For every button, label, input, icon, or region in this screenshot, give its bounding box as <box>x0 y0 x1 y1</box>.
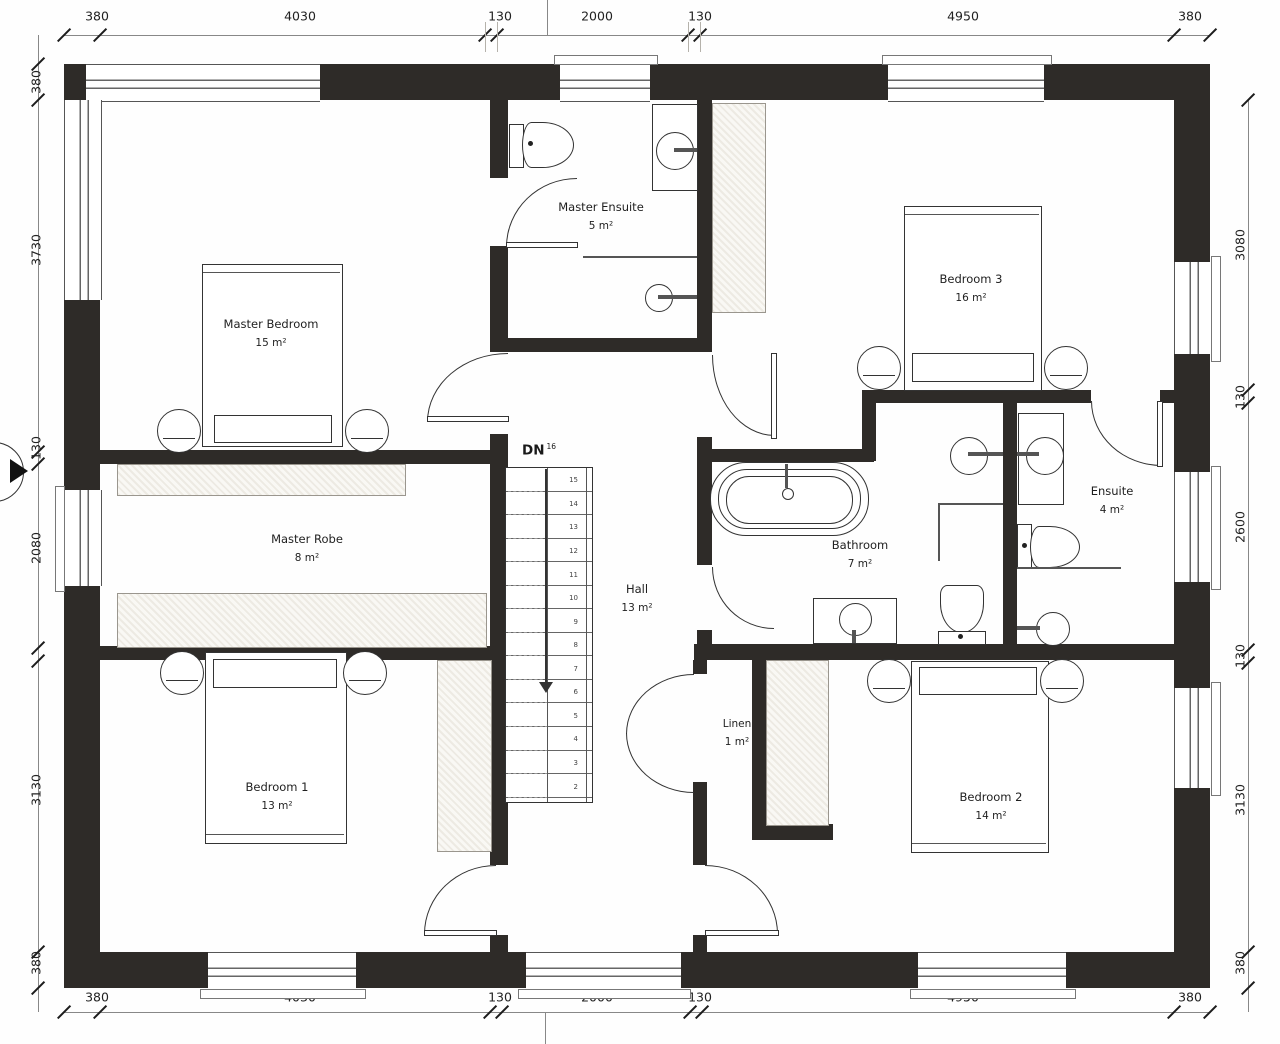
exterior-wall <box>1174 354 1210 472</box>
exterior-wall <box>1174 64 1210 262</box>
door-arc-ensuite <box>1091 401 1162 466</box>
dimension-label: 380 <box>85 9 109 24</box>
counter-line <box>938 503 1003 505</box>
room-label-master-robe: Master Robe8 m² <box>271 530 343 567</box>
interior-wall <box>697 100 712 352</box>
interior-wall <box>697 462 712 565</box>
stair-tread: 11 <box>506 562 592 586</box>
interior-wall <box>498 338 712 352</box>
dimension-label: 130 <box>488 990 512 1005</box>
wardrobe-master-robe-top <box>117 464 406 496</box>
window <box>888 64 1044 102</box>
toilet-button <box>1022 543 1027 548</box>
window-sill <box>1211 682 1221 796</box>
room-label-bedroom-2: Bedroom 214 m² <box>960 788 1023 825</box>
exterior-wall <box>1174 582 1210 688</box>
bed-pillow <box>214 415 332 443</box>
stair-tread: 12 <box>506 539 592 563</box>
wardrobe-bedroom-2 <box>766 660 829 826</box>
dimension-label: 380 <box>85 990 109 1005</box>
dimension-label: 4950 <box>947 9 979 24</box>
bed-pillow <box>213 659 337 688</box>
door-leaf <box>506 242 578 248</box>
toilet-button <box>528 141 533 146</box>
room-label-hall: Hall13 m² <box>621 580 652 617</box>
door-leaf <box>1157 401 1163 467</box>
wardrobe-bedroom-3 <box>712 103 766 313</box>
bathtub-inner <box>726 476 853 524</box>
interior-wall <box>862 397 876 461</box>
window <box>918 952 1066 990</box>
exterior-wall <box>320 64 560 100</box>
interior-wall <box>697 449 874 462</box>
toilet-button <box>958 634 963 639</box>
bed-fold-line <box>905 214 1039 215</box>
door-arc-bedroom-1 <box>424 865 496 934</box>
door-leaf <box>705 930 779 936</box>
window-sill <box>200 989 366 999</box>
dimension-label: 3080 <box>1233 229 1248 261</box>
door-arc-bedroom-2 <box>705 865 778 934</box>
stair-direction-arrow <box>545 469 547 683</box>
door-arc-master-bedroom <box>427 353 508 422</box>
linen-door-arc-top <box>626 674 694 734</box>
room-label-master-ensuite: Master Ensuite5 m² <box>558 198 644 235</box>
sink-tap <box>968 452 1003 456</box>
dimension-label: 2600 <box>1233 511 1248 543</box>
bedside-table <box>345 409 389 453</box>
interior-wall <box>490 246 508 352</box>
dimension-label: 130 <box>1233 644 1248 668</box>
stair-divider-line <box>547 468 548 802</box>
centerline-bottom <box>545 1012 546 1044</box>
exterior-wall <box>356 952 526 988</box>
exterior-wall <box>64 586 100 952</box>
interior-wall <box>490 100 508 178</box>
window-sill <box>55 486 65 592</box>
door-arc-bedroom-3 <box>712 355 775 436</box>
window-sill <box>1211 466 1221 590</box>
exterior-wall <box>681 952 918 988</box>
floor-plan: 380 4030 130 2000 130 4950 380 380 4030 … <box>0 0 1280 1044</box>
toilet-bowl <box>940 585 984 633</box>
room-label-bedroom-3: Bedroom 316 m² <box>940 270 1003 307</box>
stair-tread: 4 <box>506 727 592 751</box>
window <box>526 952 681 990</box>
bedside-table <box>1044 346 1088 390</box>
dimension-line-top <box>64 35 1210 36</box>
centerline-top <box>547 0 548 35</box>
bed-pillow <box>919 667 1037 695</box>
stair-tread: 5 <box>506 703 592 727</box>
window <box>1174 262 1212 354</box>
bedside-table <box>160 651 204 695</box>
interior-wall <box>490 935 508 952</box>
window <box>208 952 356 990</box>
interior-wall <box>693 782 707 865</box>
sink-tap <box>658 295 697 299</box>
north-arrow-pointer-icon <box>10 459 28 483</box>
dimension-label: 130 <box>688 9 712 24</box>
window <box>1174 688 1212 788</box>
sink-basin <box>1036 612 1070 646</box>
dimension-label: 3130 <box>1233 784 1248 816</box>
room-label-bathroom: Bathroom7 m² <box>832 536 888 573</box>
stair-tread: 9 <box>506 609 592 633</box>
door-leaf <box>771 353 777 439</box>
toilet-bowl <box>1030 526 1080 568</box>
stair-dn-label: DN16 <box>522 442 556 459</box>
room-label-ensuite: Ensuite4 m² <box>1091 482 1134 519</box>
wardrobe-master-robe-bottom <box>117 593 487 648</box>
sink-basin <box>1026 437 1064 475</box>
stair-tread: 15 <box>506 468 592 492</box>
sink-tap <box>852 630 856 643</box>
dimension-label: 380 <box>1233 951 1248 975</box>
interior-wall <box>88 450 508 464</box>
room-label-linen: Linen1 m² <box>723 716 752 752</box>
bedside-table <box>1040 659 1084 703</box>
room-label-bedroom-1: Bedroom 113 m² <box>246 778 309 815</box>
sink-tap <box>674 148 697 152</box>
stair-tread: 14 <box>506 492 592 516</box>
stair-tread: 2 <box>506 774 592 798</box>
stair-tread: 13 <box>506 515 592 539</box>
window <box>86 64 320 102</box>
exterior-wall <box>1174 788 1210 952</box>
window-sill <box>910 989 1076 999</box>
bed-fold-line <box>912 843 1046 844</box>
dimension-label: 380 <box>29 70 44 94</box>
stair-arrowhead <box>539 682 553 693</box>
stair-tread: 8 <box>506 633 592 657</box>
sink-basin <box>950 437 988 475</box>
interior-wall <box>693 935 707 952</box>
dimension-label: 130 <box>488 9 512 24</box>
interior-wall <box>752 660 766 840</box>
dimension-line-right <box>1248 100 1249 1012</box>
dimension-label: 380 <box>29 951 44 975</box>
sink-tap <box>1017 626 1040 630</box>
bathtub-tap <box>782 488 794 500</box>
stair-tread: 7 <box>506 656 592 680</box>
bathtub-tap-stem <box>785 464 788 488</box>
stair-tread: 3 <box>506 751 592 775</box>
window <box>64 490 102 586</box>
dimension-label: 4030 <box>284 9 316 24</box>
window <box>1174 472 1212 582</box>
dimension-label: 130 <box>29 436 44 460</box>
window-sill <box>882 55 1052 65</box>
shower-screen-line <box>583 256 697 258</box>
dimension-label: 2080 <box>29 532 44 564</box>
stair-treads: 15141312111098765432 <box>506 468 592 798</box>
interior-wall <box>693 660 707 674</box>
room-label-master-bedroom: Master Bedroom15 m² <box>224 315 319 352</box>
exterior-wall <box>64 952 208 988</box>
dimension-label: 2000 <box>581 9 613 24</box>
dimension-line-bottom <box>64 1012 1210 1013</box>
exterior-wall <box>1066 952 1210 988</box>
window <box>560 64 650 102</box>
sink-tap <box>1017 452 1039 456</box>
bed-fold-line <box>206 834 344 835</box>
bedside-table <box>857 346 901 390</box>
dimension-line-left <box>38 35 39 1012</box>
staircase: 15141312111098765432 <box>505 467 593 803</box>
counter-line <box>938 503 940 561</box>
window-sill <box>1211 256 1221 362</box>
exterior-wall <box>64 64 88 100</box>
bed-pillow <box>912 353 1034 382</box>
door-arc-bathroom <box>712 567 774 629</box>
window <box>64 100 102 300</box>
dimension-label: 130 <box>688 990 712 1005</box>
dimension-label: 130 <box>1233 385 1248 409</box>
stair-rail-line <box>586 468 587 802</box>
window-sill <box>518 989 691 999</box>
counter-line <box>1017 567 1121 569</box>
door-leaf <box>427 416 509 422</box>
door-leaf <box>424 930 497 936</box>
dimension-label: 380 <box>1178 990 1202 1005</box>
window-sill <box>554 55 658 65</box>
linen-door-arc-bottom <box>626 733 694 793</box>
exterior-wall <box>650 64 888 100</box>
dimension-label: 3130 <box>29 774 44 806</box>
stair-tread: 10 <box>506 586 592 610</box>
bedside-table <box>343 651 387 695</box>
bed-fold-line <box>203 272 340 273</box>
bedside-table <box>157 409 201 453</box>
dimension-label: 3730 <box>29 234 44 266</box>
dimension-label: 380 <box>1178 9 1202 24</box>
interior-wall <box>694 644 1174 660</box>
interior-wall <box>862 390 1091 403</box>
bedside-table <box>867 659 911 703</box>
interior-wall <box>752 824 833 840</box>
interior-wall <box>1003 403 1017 659</box>
wardrobe-bedroom-1 <box>437 660 492 852</box>
